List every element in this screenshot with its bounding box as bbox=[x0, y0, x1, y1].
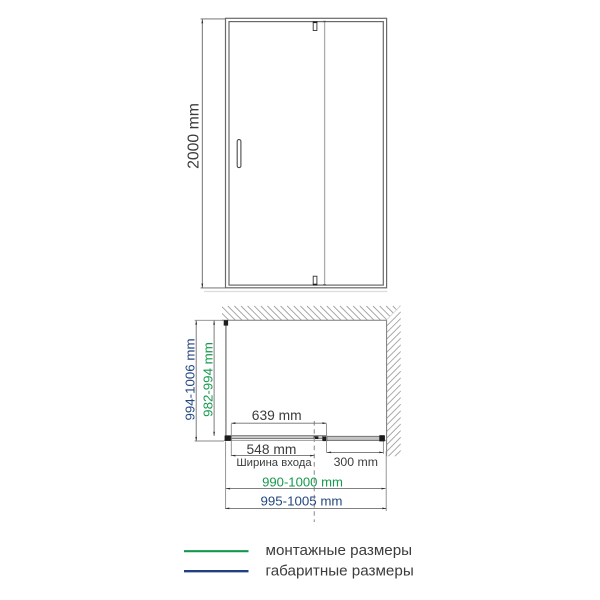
svg-text:994-1006 mm: 994-1006 mm bbox=[183, 338, 198, 420]
svg-text:Ширина входа: Ширина входа bbox=[236, 457, 312, 469]
svg-text:639 mm: 639 mm bbox=[252, 408, 302, 423]
svg-text:982-994 mm: 982-994 mm bbox=[201, 342, 216, 417]
svg-text:монтажные размеры: монтажные размеры bbox=[266, 542, 413, 559]
svg-text:990-1000 mm: 990-1000 mm bbox=[262, 474, 343, 489]
svg-text:габаритные размеры: габаритные размеры bbox=[266, 562, 414, 579]
svg-text:548 mm: 548 mm bbox=[246, 442, 296, 457]
svg-text:995-1005 mm: 995-1005 mm bbox=[260, 494, 342, 509]
svg-text:300 mm: 300 mm bbox=[334, 455, 378, 469]
svg-text:2000 mm: 2000 mm bbox=[185, 103, 202, 169]
